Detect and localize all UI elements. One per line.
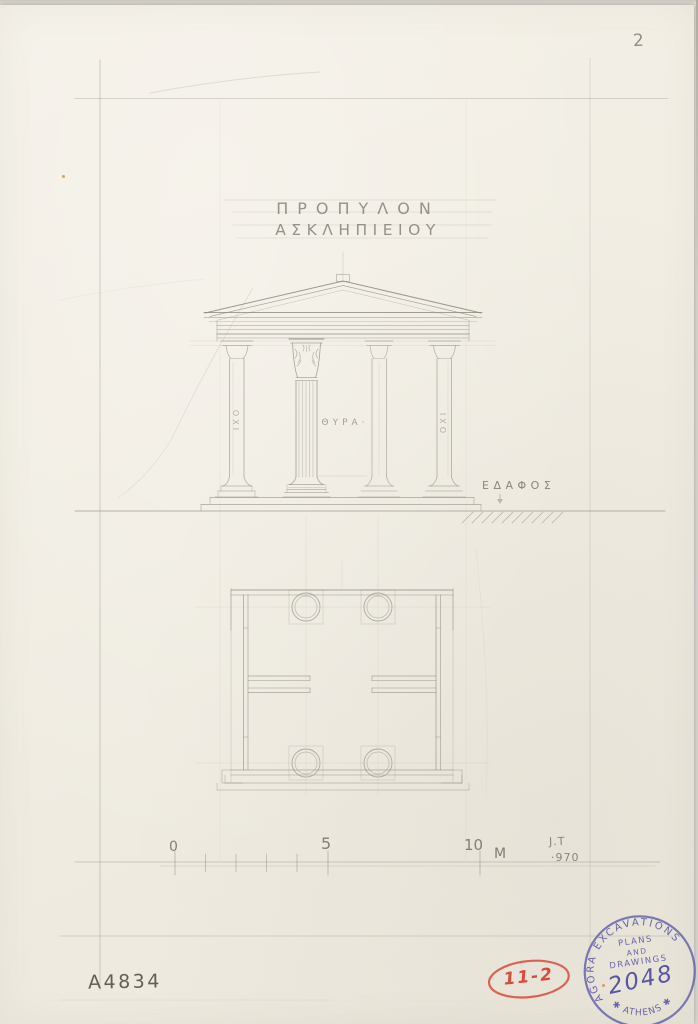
- scale-tick-0: 0: [169, 839, 178, 855]
- plan-columns: [292, 593, 392, 777]
- left-pier-label-text: ΟΧΙ: [232, 409, 241, 432]
- ground-label: ΕΔΑΦΟΣ: [482, 479, 555, 492]
- paper-creases: [60, 72, 487, 795]
- right-pier-label-text: ΟΧΙ: [440, 409, 449, 432]
- pencil-linework: [0, 0, 698, 1024]
- plan-cross-walls: [248, 676, 436, 693]
- elevation-drawing: [75, 275, 665, 524]
- plan-column-plinths: [289, 590, 395, 780]
- drawing-title-line2: ΑΣΚΛΗΠΙΕΙΟΥ: [228, 221, 488, 239]
- catalog-number: A4834: [88, 970, 162, 993]
- entablature: [190, 322, 495, 346]
- right-pier-label: ΟΧΙ: [433, 399, 455, 443]
- author-initials: J.T: [549, 835, 566, 849]
- paper-speck: [62, 175, 65, 178]
- plan-bottom-steps: [217, 775, 469, 790]
- ground-line: [75, 494, 665, 511]
- scale-tick-10: 10: [464, 836, 483, 854]
- scale-tick-5: 5: [321, 834, 331, 853]
- plan-projection-lines: [195, 515, 490, 795]
- paper-speck: [602, 984, 605, 987]
- author-year: ·970: [551, 851, 580, 864]
- page-number: 2: [632, 31, 644, 52]
- plan-walls: [222, 588, 462, 783]
- scale-unit: M: [494, 846, 507, 862]
- scanned-sheet: 2 ΠΡΟΠΥΛΟΝ ΑΣΚΛΗΠΙΕΙΟΥ ΘΥΡΑ· ΕΔΑΦΟΣ ΟΧΙ …: [0, 0, 698, 1024]
- left-pier-label: ΟΧΙ: [225, 399, 247, 443]
- agora-stamp: AGORA EXCAVATIONS ✱ ATHENS ✱ PLANS AND D…: [566, 897, 698, 1024]
- ground-hatching: [462, 512, 563, 523]
- pediment: [204, 275, 482, 322]
- drawing-title-line1: ΠΡΟΠΥΛΟΝ: [228, 199, 488, 218]
- plan-drawing: [195, 515, 490, 795]
- stylobate-steps: [201, 476, 481, 511]
- red-inventory-tag: 11-2: [484, 954, 576, 1007]
- door-label: ΘΥΡΑ·: [315, 418, 375, 428]
